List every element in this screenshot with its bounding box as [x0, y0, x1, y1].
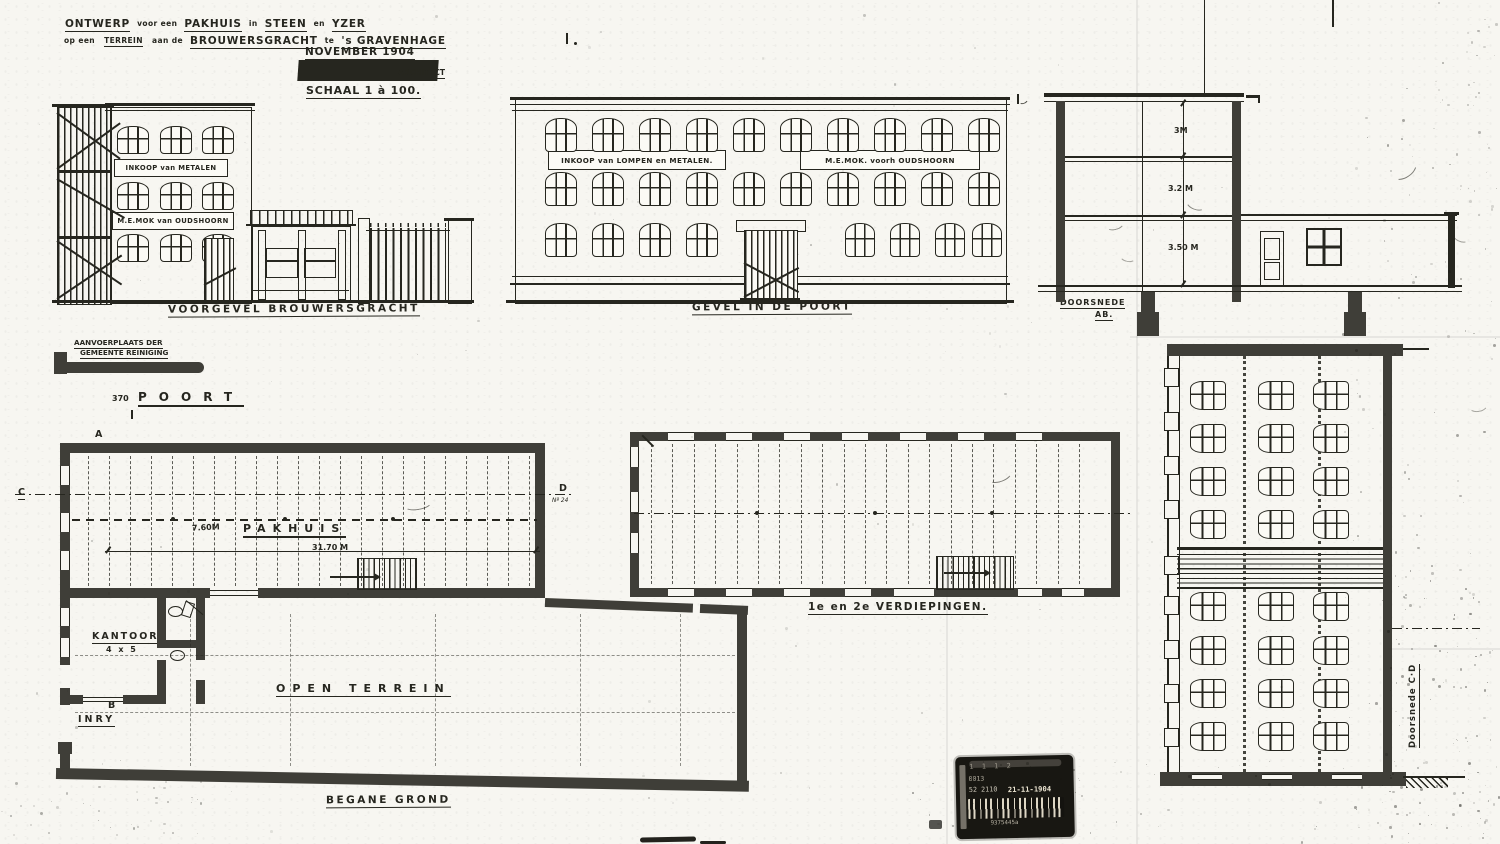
scan-speck [648, 797, 650, 799]
scan-speck [1301, 841, 1304, 844]
scan-speck [1402, 717, 1404, 719]
caption-doorsnede-ab-1: DOORSNEDE [1060, 298, 1125, 309]
scan-speck [1395, 711, 1397, 713]
scan-speck [1405, 594, 1407, 596]
title-joiner: in [249, 19, 258, 28]
line [60, 551, 61, 570]
scan-speck [1474, 190, 1475, 191]
scan-speck [10, 815, 12, 817]
scan-speck [1369, 703, 1370, 704]
scan-speck [1368, 809, 1370, 811]
title-word: TERREIN [104, 36, 143, 47]
line [1065, 220, 1232, 221]
line [1062, 588, 1084, 589]
caption-begane-grond: BEGANE GROND [326, 794, 451, 809]
scan-speck [197, 833, 198, 834]
scan-speck [1439, 650, 1441, 652]
scan-speck [1432, 678, 1434, 680]
line [69, 466, 70, 485]
stamp-date: 21-11-1904 [1008, 784, 1051, 794]
line [52, 300, 474, 303]
scan-speck [1081, 795, 1083, 797]
line [1241, 214, 1457, 216]
line [842, 440, 868, 441]
marker-d: D [559, 483, 567, 494]
scan-speck [1469, 613, 1471, 615]
scan-speck [1467, 104, 1468, 105]
column-dot [873, 511, 877, 515]
scan-speck [1420, 515, 1422, 517]
pencil-squiggle [1185, 195, 1208, 213]
window-glyph [827, 172, 859, 206]
scan-speck [1493, 344, 1496, 347]
line [105, 103, 255, 106]
pencil-squiggle [1467, 396, 1489, 413]
scan-speck [15, 782, 18, 785]
scan-speck [1078, 778, 1079, 779]
scan-speck [1456, 153, 1459, 156]
scan-speck [1445, 261, 1447, 263]
scan-speck [1031, 322, 1033, 324]
scan-speck [1457, 740, 1458, 741]
scan-speck [197, 799, 198, 800]
scan-speck [374, 713, 375, 714]
column-dot [990, 511, 994, 515]
scan-speck [1492, 650, 1493, 651]
line [726, 440, 752, 441]
scan-speck [1462, 792, 1464, 794]
scan-speck [946, 308, 949, 311]
line [630, 447, 631, 467]
line [83, 701, 123, 702]
scan-speck [20, 805, 22, 807]
joist-dashed-line [256, 456, 257, 586]
cd-right-wall [1383, 356, 1392, 774]
scan-speck [1463, 502, 1464, 503]
scan-speck [1390, 690, 1391, 691]
scan-speck [1438, 685, 1441, 688]
line [566, 33, 568, 44]
window-glyph [1258, 467, 1294, 496]
scan-speck [1353, 540, 1354, 541]
line [1038, 285, 1462, 287]
scan-speck [809, 787, 810, 788]
stamp-barcode-number: 9375445a [990, 820, 1018, 827]
scan-speck [1218, 767, 1219, 768]
scan-speck [912, 792, 914, 794]
scan-speck [1483, 431, 1485, 433]
scan-speck [1415, 276, 1418, 279]
window-glyph [733, 118, 765, 152]
scan-speck [1417, 547, 1419, 549]
scan-speck [1387, 144, 1390, 147]
scan-speck [1406, 88, 1408, 90]
line [1018, 596, 1042, 597]
scan-speck [1469, 200, 1472, 203]
dim-3-2m: 3.2 M [1168, 184, 1193, 193]
window-glyph [202, 182, 234, 210]
scan-speck [1453, 743, 1454, 744]
cd-wall-slot [1164, 412, 1179, 431]
window-glyph [592, 118, 624, 152]
scan-speck [1423, 762, 1425, 764]
line [69, 513, 70, 532]
scan-speck [1033, 790, 1036, 793]
scan-speck [1470, 553, 1471, 554]
section-column [1232, 101, 1241, 302]
line [252, 290, 349, 291]
scan-speck [1039, 609, 1041, 611]
scan-speck [1075, 792, 1076, 793]
scan-speck [1404, 597, 1406, 599]
poort-number: 370 [112, 394, 129, 403]
stamp-barcode [968, 797, 1064, 819]
title-joiner: voor een [137, 19, 177, 28]
scan-speck [165, 781, 167, 783]
scan-speck [780, 772, 782, 774]
scan-speck [347, 593, 349, 595]
fence-pier [448, 220, 472, 304]
scan-speck [648, 700, 650, 702]
line [842, 432, 868, 433]
scan-speck [1403, 515, 1406, 518]
scan-speck [66, 792, 69, 795]
scan-speck [588, 46, 591, 49]
pencil-squiggle [403, 496, 433, 513]
scan-speck [921, 712, 923, 714]
title-joiner: op een [64, 36, 95, 45]
scan-speck [435, 15, 438, 18]
scan-speck [1432, 167, 1434, 169]
window-glyph [1258, 381, 1294, 410]
joist-dashed-line [109, 456, 110, 586]
scan-speck [1387, 630, 1389, 632]
scan-speck [137, 826, 139, 828]
line [1065, 215, 1232, 217]
scan-speck [952, 825, 954, 827]
scan-speck [1478, 131, 1481, 134]
column-footing [1137, 312, 1159, 336]
scan-speck [1167, 809, 1170, 812]
upper-wall-bottom [630, 588, 1120, 597]
open-terrein-label: OPEN TERREIN [276, 682, 451, 697]
scan-speck [232, 534, 233, 535]
joist-dashed-line [445, 456, 446, 586]
scan-speck [1452, 813, 1455, 816]
scan-speck [271, 381, 272, 382]
window-glyph [117, 234, 149, 262]
hall-wall-top [60, 443, 545, 453]
scan-speck [1395, 551, 1398, 554]
scan-speck [1465, 588, 1467, 590]
scan-speck [1471, 41, 1474, 44]
scan-speck [48, 832, 51, 835]
line [83, 697, 123, 698]
scan-speck [1367, 137, 1368, 138]
fold-line [1388, 648, 1500, 650]
scan-speck [642, 775, 645, 778]
window-glyph [874, 172, 906, 206]
scan-speck [98, 820, 99, 821]
caption-verdiepingen: 1e en 2e VERDIEPINGEN. [808, 601, 988, 615]
column-footing [1348, 292, 1362, 312]
iron-fence [370, 228, 446, 302]
window-glyph [1190, 467, 1226, 496]
scan-speck [160, 546, 162, 548]
scan-speck [1491, 208, 1493, 210]
dim-line [105, 551, 540, 552]
scan-speck [1425, 761, 1428, 764]
section-end-post [1448, 214, 1455, 288]
upper-wall-right [1111, 432, 1120, 597]
scan-speck [810, 244, 812, 246]
scan-speck [1459, 569, 1461, 571]
scan-speck [13, 834, 15, 836]
scan-speck [863, 14, 865, 16]
window-glyph [686, 172, 718, 206]
window-glyph [1258, 722, 1294, 751]
line [1018, 588, 1042, 589]
scan-speck [1398, 297, 1400, 299]
scan-speck [191, 802, 192, 803]
scan-speck [1409, 604, 1412, 607]
scan-speck [1426, 598, 1427, 599]
office-wall [60, 626, 70, 638]
scan-speck [1384, 413, 1386, 415]
line [784, 588, 810, 589]
scan-speck [1405, 609, 1407, 611]
scan-speck [1484, 19, 1486, 21]
scan-speck [133, 827, 136, 830]
cd-top-slab [1167, 344, 1403, 356]
scan-speck [1485, 819, 1488, 822]
scan-speck [1394, 761, 1395, 762]
arrow-head [984, 569, 991, 577]
scan-speck [1401, 625, 1403, 627]
scan-speck [1400, 786, 1402, 788]
office-label: KANTOOR [92, 631, 159, 644]
scan-speck [163, 832, 166, 835]
terrain-dashed-line [680, 614, 681, 766]
scan-speck [1411, 274, 1412, 275]
window-glyph [968, 118, 1000, 152]
terrain-wall-bottom [56, 768, 749, 792]
scan-speck [945, 351, 947, 353]
line [1332, 0, 1334, 27]
line [1065, 161, 1232, 162]
scan-speck [1440, 102, 1441, 103]
window-glyph [545, 223, 577, 257]
scan-speck [1473, 82, 1474, 83]
scan-speck [1483, 46, 1485, 48]
scan-speck [1453, 792, 1456, 795]
line [845, 596, 871, 597]
line [60, 466, 61, 485]
scan-speck [1460, 185, 1462, 187]
scan-speck [1453, 618, 1455, 620]
wc-partition [196, 680, 205, 704]
line [1044, 101, 1244, 102]
scan-speck [1453, 686, 1454, 687]
scan-speck [1478, 601, 1480, 603]
scan-speck [999, 345, 1002, 348]
line [900, 440, 926, 441]
cd-wall-slot [1164, 500, 1179, 519]
window-glyph [639, 172, 671, 206]
scan-speck [1472, 593, 1475, 596]
line [60, 638, 61, 657]
scan-speck [167, 801, 169, 803]
scan-speck [1468, 188, 1469, 189]
scan-speck [1356, 379, 1358, 381]
joist-dashed-line [214, 456, 215, 586]
scan-speck [1153, 229, 1155, 231]
scan-speck [1377, 822, 1378, 823]
column-footing [1141, 292, 1155, 312]
scan-speck [1396, 639, 1397, 640]
scan-speck [1459, 495, 1462, 498]
scan-speck [1394, 805, 1397, 808]
line [900, 432, 926, 433]
scan-speck [1005, 780, 1006, 781]
scan-speck [1409, 194, 1411, 196]
line [1403, 348, 1429, 350]
line [1016, 432, 1042, 433]
scan-speck [1239, 765, 1240, 766]
scan-speck [187, 590, 190, 593]
scan-speck [691, 436, 693, 438]
scan-speck [1140, 813, 1142, 815]
scan-speck [672, 802, 674, 804]
section-annex-window [1306, 228, 1342, 266]
window-glyph [639, 223, 671, 257]
scan-speck [1476, 735, 1478, 737]
scan-speck [1448, 270, 1451, 273]
scan-speck [1026, 762, 1029, 765]
scan-speck [1487, 682, 1488, 683]
caption-voorgevel: VOORGEVEL BROUWERSGRACHT [168, 302, 420, 317]
window-glyph [874, 118, 906, 152]
scan-speck [1431, 565, 1433, 567]
window-glyph [592, 172, 624, 206]
joist-dashed-line [172, 456, 173, 586]
line [784, 432, 810, 433]
scan-speck [120, 760, 121, 761]
window-glyph [1190, 510, 1226, 539]
scan-speck [1058, 64, 1059, 65]
scan-speck [1488, 26, 1491, 29]
office-wall-bottom [60, 695, 83, 704]
scan-speck [1023, 781, 1025, 783]
joist-dashed-line [424, 456, 425, 586]
scan-speck [1479, 791, 1482, 794]
line [60, 513, 61, 532]
window-glyph [592, 223, 624, 257]
scan-speck [785, 627, 788, 630]
column-dot [171, 517, 175, 521]
scan-speck [56, 806, 59, 809]
line [210, 590, 258, 591]
scan-speck [153, 787, 154, 788]
blueprint-sheet: ONTWERP voor een PAKHUIS in STEEN en YZE… [0, 0, 1500, 844]
title-joiner: aan de [152, 36, 183, 45]
title-date: NOVEMBER 1904 [305, 46, 415, 60]
scan-speck [1484, 821, 1486, 823]
scan-speck [1007, 305, 1009, 307]
scan-speck [1396, 682, 1398, 684]
scan-speck [110, 827, 111, 828]
line [131, 410, 133, 419]
scan-speck [1114, 762, 1116, 764]
fold-line [1130, 336, 1500, 338]
line [638, 492, 639, 512]
door-panel [1264, 238, 1280, 260]
scan-speck [932, 783, 934, 785]
line [958, 432, 984, 433]
scan-speck [1473, 105, 1474, 106]
line [69, 551, 70, 570]
window-glyph [160, 234, 192, 262]
joist-dashed-line [466, 456, 467, 586]
scan-speck [1391, 228, 1393, 230]
aanvoerplaats-line-2: GEMEENTE REINIGING [80, 348, 168, 359]
scan-speck [594, 212, 597, 215]
scale-label: SCHAAL 1 à 100. [306, 84, 421, 99]
scan-speck [1467, 32, 1469, 34]
window-glyph [1190, 636, 1226, 665]
fold-line [946, 560, 948, 844]
scan-speck [1475, 96, 1477, 98]
scan-speck [1414, 745, 1417, 748]
scan-speck [1476, 638, 1477, 639]
scan-speck [231, 791, 232, 792]
beam-center-line [634, 513, 1130, 514]
window-glyph [1190, 381, 1226, 410]
scan-speck [1408, 833, 1409, 834]
terrain-dashed-line [435, 614, 436, 766]
scan-speck [1454, 614, 1455, 615]
office-partition [157, 597, 166, 644]
scan-speck [1493, 803, 1496, 806]
scan-speck [1398, 643, 1400, 645]
scan-speck [877, 523, 879, 525]
scan-speck [866, 469, 867, 470]
scan-speck [200, 781, 202, 783]
scan-speck [30, 824, 32, 826]
line [510, 97, 1010, 100]
scan-speck [1398, 586, 1399, 587]
window-glyph [1258, 510, 1294, 539]
scan-speck [1406, 814, 1409, 817]
column-dot [283, 517, 287, 521]
scan-speck [1316, 826, 1317, 827]
window-glyph [845, 223, 875, 257]
scan-speck [1319, 801, 1322, 804]
scan-speck [1356, 809, 1357, 810]
fence-spikes [370, 223, 446, 227]
scan-speck [1358, 827, 1360, 829]
scan-speck [477, 320, 480, 323]
scan-speck [1467, 741, 1468, 742]
scan-speck [1383, 219, 1386, 222]
beam-dashed-line [72, 519, 537, 521]
hall-width-dim: 7.60M [192, 522, 220, 532]
line [1262, 774, 1292, 775]
scan-speck [1365, 117, 1368, 120]
scan-speck [137, 799, 139, 801]
archive-stamp: 1 1 1 2 0013 52 2110 21-11-1904 9375445a [955, 755, 1075, 839]
scan-speck [1416, 534, 1418, 536]
